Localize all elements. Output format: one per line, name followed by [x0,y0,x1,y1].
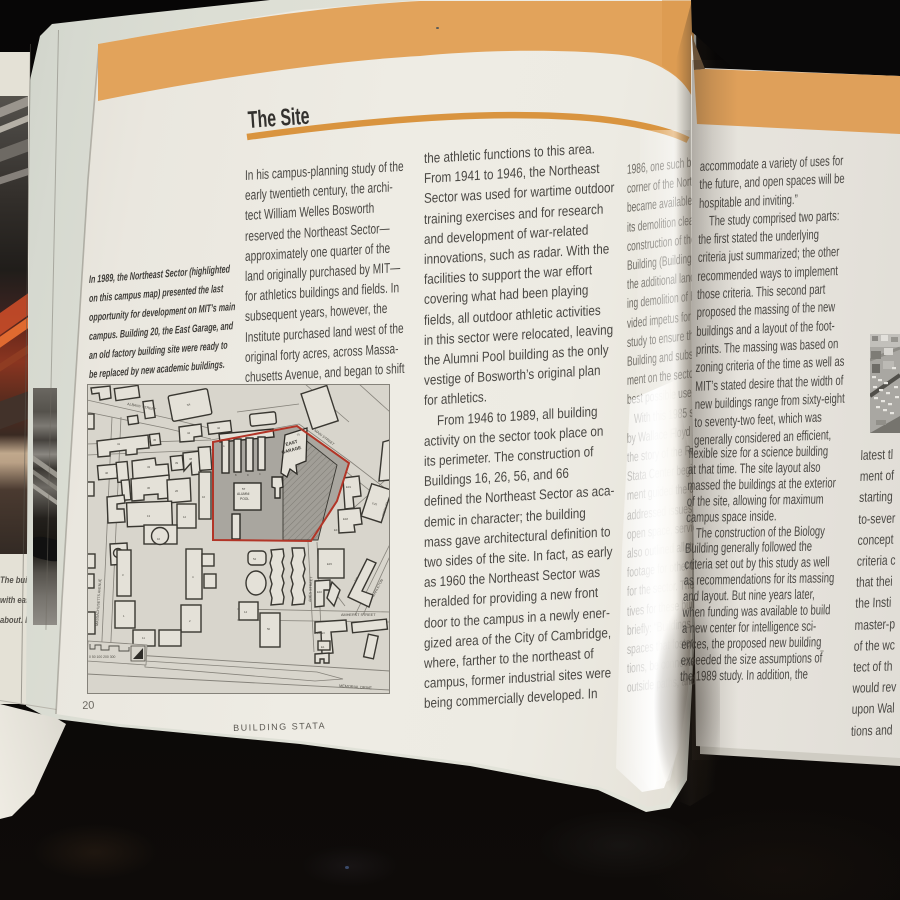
svg-text:57: 57 [242,487,246,491]
svg-text:AMHERST STREET: AMHERST STREET [341,613,376,617]
svg-text:54: 54 [253,557,257,561]
svg-text:11: 11 [142,636,145,640]
svg-text:POOL: POOL [240,497,249,501]
svg-text:36: 36 [147,486,151,490]
svg-text:E10: E10 [317,590,322,594]
svg-text:45: 45 [153,438,157,442]
svg-text:43: 43 [147,465,151,469]
svg-text:E15: E15 [327,562,332,566]
svg-text:12: 12 [183,515,187,519]
svg-text:38: 38 [189,457,193,461]
svg-text:10: 10 [157,537,161,541]
svg-text:50: 50 [267,627,271,631]
svg-text:39: 39 [175,461,179,465]
svg-text:E2 E3: E2 E3 [317,631,325,635]
svg-text:41: 41 [117,442,121,446]
svg-text:13: 13 [147,514,151,518]
svg-text:D: D [247,474,249,477]
svg-text:E18: E18 [343,517,348,521]
svg-text:ALUMNI: ALUMNI [237,492,250,496]
svg-text:E1: E1 [321,645,325,649]
svg-text:26: 26 [175,489,179,493]
svg-text:44: 44 [187,431,191,435]
svg-text:14: 14 [244,610,248,614]
svg-text:46: 46 [105,471,109,475]
svg-text:E17: E17 [334,528,339,532]
svg-text:C: C [259,473,261,476]
svg-text:E19: E19 [346,485,351,489]
svg-text:16: 16 [202,495,206,499]
svg-text:0 50 100 200 300: 0 50 100 200 300 [89,655,116,659]
svg-text:42: 42 [217,426,221,430]
